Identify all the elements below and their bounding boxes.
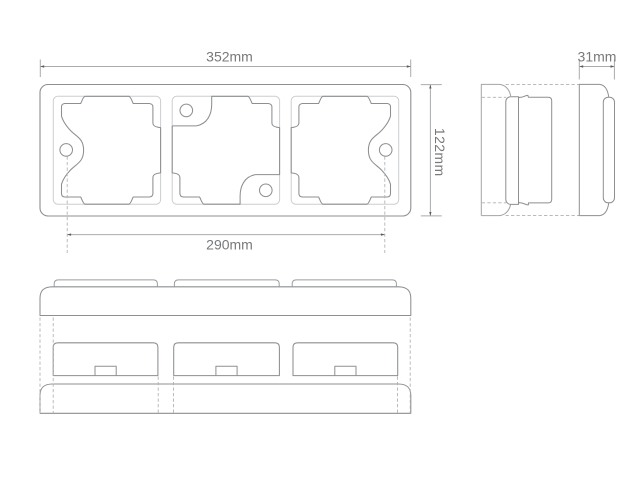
svg-text:31mm: 31mm [578, 49, 617, 65]
svg-text:122mm: 122mm [432, 128, 448, 177]
svg-text:290mm: 290mm [206, 237, 253, 253]
svg-text:352mm: 352mm [206, 49, 253, 65]
